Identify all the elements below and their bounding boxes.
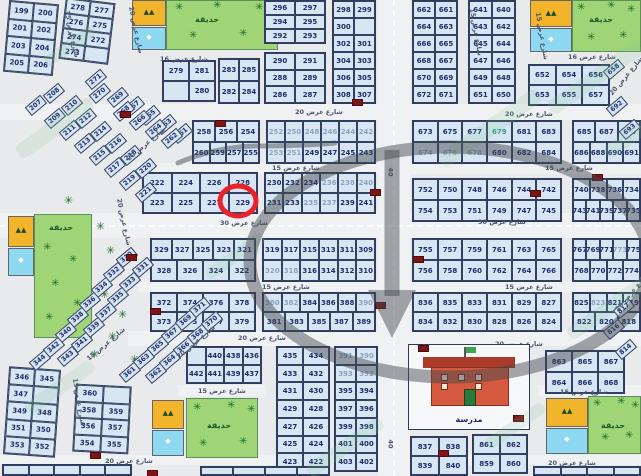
plot-block-b662: 662661664663666665668667670669672671 [412,0,458,104]
plot-cell-279: 279 [163,61,189,81]
plot-cell-436: 436 [243,347,262,365]
plot-cell-389: 389 [353,312,375,331]
school-window [441,383,448,390]
plot-cell-199: 199 [9,1,34,21]
plot-cell-435: 435 [277,347,303,365]
tree-icon: ✳ [69,255,77,265]
plot-cell-827: 827 [536,293,561,312]
boat-glyph: ◆ [547,435,587,443]
plot-row: 296297 [265,1,325,15]
park-label: حديقة [49,223,73,232]
plot-cell-empty [83,46,109,64]
tree-icon: ✳ [51,279,59,289]
plot-cell-426: 426 [303,418,329,436]
plot-cell-390: 390 [356,293,375,312]
street-v40-centerline [393,0,395,476]
plot-row: 668667 [413,52,457,69]
plot-row: 223225227229 [143,193,257,213]
plot-cell-432: 432 [303,365,329,383]
plot-cell-247: 247 [321,142,339,163]
park-label: حديقة [207,421,231,430]
plot-cell-203: 203 [6,36,31,56]
plot-row: 354355 [73,434,128,453]
plot-cell-662: 662 [413,1,435,18]
bus-stop-marker-icon [530,190,541,197]
bus-stop-marker-icon [413,256,424,263]
plot-cell-224: 224 [172,173,201,193]
plot-row: 768770772774 [573,260,640,281]
plot-cell-771: 771 [600,239,613,260]
plot-cell-306: 306 [333,69,354,86]
plot-row: 319317315313311309 [263,239,375,260]
plot-cell-769: 769 [586,239,599,260]
plot-row: 283285 [219,59,259,81]
plot-cell-290: 290 [265,53,295,70]
plot-cell-430: 430 [303,382,329,400]
plot-cell-739: 739 [600,200,613,221]
plot-cell-380: 380 [263,293,282,312]
street-label: شارع عرض 20 [295,108,343,116]
plot-cell-378: 378 [229,293,255,312]
plot-cell-300: 300 [333,18,354,35]
plot-cell-834: 834 [413,312,438,331]
plot-cell-680: 680 [487,142,512,163]
plot-cell-644: 644 [492,35,515,52]
plot-cell-648: 648 [492,69,515,86]
school-door [464,389,476,406]
plot-cell-319: 319 [263,239,282,260]
plot-cell-661: 661 [435,1,457,18]
plot-cell-860: 860 [500,454,527,473]
street-label: شارع عرض 20 [238,334,286,342]
plot-cell-296: 296 [265,1,295,15]
tree-icon: ✳ [601,433,609,443]
plot-cell-318: 318 [282,260,301,281]
boat-glyph: ◆ [9,256,33,264]
plot-block-b230: 230232234236238240231233235237239241 [264,172,376,214]
plot-cell-754: 754 [413,200,438,221]
plot-cell-314: 314 [319,260,338,281]
plot-cell-254: 254 [237,121,259,142]
plot-cell-empty [587,467,614,475]
plot-cell-437: 437 [243,365,262,383]
school-window [458,374,465,381]
plot-cell-201: 201 [7,18,32,38]
tree-icon: ✳ [627,5,635,15]
plot-cell-735: 735 [627,200,640,221]
plot-cell-248: 248 [303,121,321,142]
plot-cell-765: 765 [536,239,561,260]
plot-cell-684: 684 [536,142,561,163]
plot-cell-740: 740 [573,179,590,200]
plot-cell-244: 244 [339,121,357,142]
plot-cell-681: 681 [512,121,537,142]
plot-cell-292: 292 [265,29,295,43]
plot-block-b296: 296297294295292293 [264,0,326,44]
plot-block-b290: 290291288289286287 [264,52,326,104]
plot-cell-663: 663 [435,18,457,35]
plot-cell-246: 246 [321,121,339,142]
plot-row: 431430 [277,382,329,400]
plot-cell-empty [163,81,189,101]
plot-cell-205: 205 [4,53,29,73]
plot-cell-388: 388 [338,293,357,312]
plot-row: 391390 [335,347,377,365]
bus-stop-marker-icon [370,189,381,196]
plot-cell-236: 236 [320,173,338,193]
subdivision-map: حديقة✳✳✳✳✳✳▲▲◆حديقة✳✳✳✳✳▲▲◆حديقة✳✳✳✳✳▲▲◆… [0,0,641,476]
plot-cell-287: 287 [295,86,325,103]
park-label: حديقة [589,15,613,24]
plot-cell-381: 381 [263,312,285,331]
plot-cell-682: 682 [512,142,537,163]
school-window [441,374,448,381]
plot-row: 435434 [277,347,329,365]
plot-row: 380382384386388390 [263,293,375,312]
plot-cell-757: 757 [438,239,463,260]
plot-cell-439: 439 [224,365,243,383]
plot-row: 395394 [335,382,377,400]
plot-block-b319: 319317315313311309320318316314312310 [262,238,376,282]
plot-row: 381383385387389 [263,312,375,331]
plot-cell-767: 767 [573,239,586,260]
plot-cell-395: 395 [335,382,356,400]
plot-cell-302: 302 [333,35,354,52]
plot-cell-743: 743 [573,200,586,221]
plot-row: 288289 [265,70,325,87]
plot-cell-313: 313 [319,239,338,260]
plot-block-b380: 380382384386388390381383385387389 [262,292,376,332]
plot-cell-305: 305 [354,69,375,86]
plot-cell-763: 763 [512,239,537,260]
plot-cell-357: 357 [101,419,129,437]
plot-cell-865: 865 [572,351,598,372]
plot-cell-284: 284 [239,81,259,103]
plot-cell-670: 670 [413,69,435,86]
plot-row: 230232234236238240 [265,173,375,193]
plot-row: 253251249247245243 [267,142,375,163]
plot-cell-empty [265,467,297,475]
plot-cell-737: 737 [613,200,626,221]
plot-cell-758: 758 [438,260,463,281]
plot-cell-392: 392 [356,365,377,383]
plot-cell-298: 298 [333,1,354,18]
plot-row [3,465,131,475]
plot-cell-355: 355 [100,435,128,453]
park-bottom-center: حديقة✳✳✳✳✳ [186,398,258,458]
street-label: شارع عرض 15 [198,387,246,395]
park-bottom-right: حديقة✳✳✳✳✳ [588,396,641,454]
tree-icon: ✳ [617,397,625,407]
plot-cell-829: 829 [512,293,537,312]
tree-icon: ✳ [247,405,255,415]
plot-cell-438: 438 [224,347,243,365]
plot-cell-665: 665 [435,35,457,52]
plot-cell-391: 391 [335,347,356,365]
plot-block-b836: 836835833831829827834832830828826824 [412,292,562,332]
plot-row: 294295 [265,15,325,29]
plot-cell-299: 299 [354,1,375,18]
plot-cell-241: 241 [357,193,375,213]
plot-row: 286287 [265,86,325,103]
plot-block-b740: 740738736734743741739737735 [572,178,641,222]
park-sign-blue-icon: ◆ [152,430,184,456]
plot-cell-428: 428 [303,400,329,418]
plot-cell-429: 429 [277,400,303,418]
plot-row: 320318316314312310 [263,260,375,281]
plot-cell-230: 230 [265,173,283,193]
tree-icon: ✳ [43,243,51,253]
plot-cell-286: 286 [265,86,295,103]
plot-cell-281: 281 [189,61,215,81]
plot-cell-832: 832 [438,312,463,331]
tree-icon: ✳ [619,31,627,41]
plot-cell-252: 252 [267,121,285,142]
street-label: شارع عرض 15 [545,164,593,172]
plot-cell-304: 304 [333,52,354,69]
plot-row: 282284 [219,81,259,103]
plot-row: 834832830828826824 [413,312,561,331]
plot-row: 280 [163,81,215,101]
plot-cell-773: 773 [613,239,626,260]
plot-block-b752: 752750748746744742754753751749747745 [412,178,562,222]
plot-cell-750: 750 [438,179,463,200]
plot-cell-674: 674 [413,142,438,163]
plot-cell-734: 734 [623,179,640,200]
plot-cell-260: 260 [193,142,210,163]
street-label: 40 [387,439,395,448]
plot-cell-empty [614,467,641,475]
plot-cell-283: 283 [219,59,239,81]
tree-icon: ✳ [175,3,183,13]
plot-row: 651650 [469,86,515,103]
plot-row: 290291 [265,53,325,70]
plot-row: 756758760762764766 [413,260,561,281]
plot-cell-308: 308 [333,86,354,103]
plot-cell-243: 243 [357,142,375,163]
plot-block-b279: 279281280 [162,60,216,102]
plot-cell-746: 746 [487,179,512,200]
plot-cell-351: 351 [5,419,31,438]
plot-cell-387: 387 [330,312,352,331]
plot-cell-640: 640 [492,1,515,18]
tree-icon: ✳ [607,1,615,11]
plot-cell-839: 839 [411,456,439,475]
plot-cell-386: 386 [319,293,338,312]
street-label: شارع عرض 15 [262,283,310,291]
plot-cell-242: 242 [357,121,375,142]
plot-cell-431: 431 [277,382,303,400]
plot-cell-672: 672 [413,86,435,103]
plot-cell-772: 772 [607,260,624,281]
plot-cell-352: 352 [29,438,55,457]
plot-row: 666665 [413,35,457,52]
bus-stop-marker-icon [592,174,603,181]
plot-cell-200: 200 [33,3,58,23]
plot-cell-649: 649 [469,69,492,86]
plot-cell-646: 646 [492,52,515,69]
plot-cell-294: 294 [265,15,295,29]
plot-cell-652: 652 [529,65,556,85]
plot-cell-683: 683 [536,121,561,142]
plot-row: 743741739737735 [573,200,640,221]
plot-row: 440438436 [187,347,261,365]
plot-cell-empty [103,386,131,404]
plot-row: 767769771773775 [573,239,640,260]
plot-cell-424: 424 [303,436,329,454]
plot-cell-empty [3,465,29,475]
plot-cell-235: 235 [302,193,320,213]
palm-tree-icon: ✳ [118,310,127,320]
plot-cell-empty [354,18,375,35]
park-top-center: حديقة✳✳✳✳✳✳ [166,0,278,50]
plot-cell-664: 664 [413,18,435,35]
plot-cell-310: 310 [356,260,375,281]
plot-block-b755: 755757759761763765756758760762764766 [412,238,562,282]
park-sign-blue-icon: ◆ [8,248,34,276]
plot-cell-empty [233,467,265,475]
mountain-glyph: ▲▲ [133,8,165,16]
plot-cell-316: 316 [300,260,319,281]
tree-icon: ✳ [239,437,247,447]
plot-cell-237: 237 [320,193,338,213]
plot-block-b767: 767769771773775768770772774 [572,238,641,282]
plot-row: 260259257255 [193,142,259,163]
bus-stop-marker-icon [126,254,137,261]
plot-row: 306305 [333,69,375,86]
plot-row: 397396 [335,400,377,418]
plot-cell-831: 831 [487,293,512,312]
street-label: 40 [387,167,395,176]
plot-row: 231233235237239241 [265,193,375,213]
plot-cell-390: 390 [356,347,377,365]
plot-row: 302301 [333,35,375,52]
plot-cell-837: 837 [411,437,439,456]
plot-cell-835: 835 [438,293,463,312]
plot-cell-824: 824 [536,312,561,331]
tree-icon: ✳ [625,431,633,441]
plot-cell-836: 836 [413,293,438,312]
plot-cell-253: 253 [267,142,285,163]
plot-row: 429428 [277,400,329,418]
plot-cell-863: 863 [546,351,572,372]
mountain-glyph: ▲▲ [153,409,183,417]
plot-cell-738: 738 [590,179,607,200]
boat-glyph: ◆ [153,437,183,445]
bus-stop-marker-icon [352,99,363,106]
plot-row: 222224226228 [143,173,257,193]
plot-cell-354: 354 [73,434,101,452]
plot-cell-234: 234 [302,173,320,193]
plot-block-b440: 440438436442441439437 [186,346,262,384]
plot-row [534,467,640,475]
plot-cell-227: 227 [200,193,229,213]
plot-cell-766: 766 [536,260,561,281]
plot-cell-328: 328 [151,260,177,281]
plot-cell-320: 320 [263,260,282,281]
plot-cell-293: 293 [295,29,325,43]
plot-cell-297: 297 [295,1,325,15]
plot-cell-325: 325 [193,239,214,260]
street-label: شارع عرض 20 [105,457,153,465]
park-sign-yellow-icon: ▲▲ [546,398,588,427]
plot-cell-650: 650 [492,86,515,103]
bus-stop-marker-icon [90,452,101,459]
plot-cell-empty [54,465,80,475]
plot-cell-233: 233 [283,193,301,213]
plot-cell-309: 309 [356,239,375,260]
plot-cell-303: 303 [354,52,375,69]
bus-stop-marker-icon [215,120,226,127]
plot-row: 252250248246244242 [267,121,375,142]
plot-cell-326: 326 [177,260,203,281]
plot-cell-359: 359 [102,403,130,421]
plot-row: 304303 [333,52,375,69]
plot-block-b258: 258256254260259257255 [192,120,260,164]
plot-cell-427: 427 [277,418,303,436]
plot-row: 755757759761763765 [413,239,561,260]
street-label: شارع عرض 15 [560,388,608,396]
plot-row: 672671 [413,86,457,103]
plot-row: 442441439437 [187,365,261,383]
plot-cell-288: 288 [265,70,295,87]
plot-cell-745: 745 [536,200,561,221]
palm-tree-icon: ✳ [96,222,105,232]
plot-cell-346: 346 [9,367,35,386]
plot-block-eb3 [533,466,641,476]
street-label: شارع عرض 15 [272,164,320,172]
plot-row: 298299 [333,1,375,18]
plot-row: 353352 [4,436,55,457]
plot-cell-295: 295 [295,15,325,29]
plot-row: 328326324322 [151,260,255,281]
park-sign-yellow-icon: ▲▲ [8,216,34,247]
street-label: شارع عرض 30 [220,219,268,227]
plot-cell-642: 642 [492,18,515,35]
plot-cell-291: 291 [295,53,325,70]
plot-block-b283: 283285282284 [218,58,260,104]
plot-cell-379: 379 [229,312,255,331]
plot-cell-397: 397 [335,400,356,418]
plot-cell-232: 232 [283,173,301,193]
tree-icon: ✳ [227,401,235,411]
plot-cell-329: 329 [151,239,172,260]
park-sign-yellow-icon: ▲▲ [152,400,184,429]
bus-stop-marker-icon [418,345,429,352]
street-label: شارع عرض 20 [548,459,596,467]
plot-cell-760: 760 [462,260,487,281]
plot-cell-350: 350 [30,421,56,440]
plot-row: 279281 [163,61,215,81]
plot-cell-385: 385 [308,312,330,331]
plot-block-b298: 298299300302301304303306305308307 [332,0,376,104]
plot-block-b242: 252250248246244242253251249247245243 [266,120,376,164]
plot-cell-651: 651 [469,86,492,103]
plot-cell-826: 826 [512,312,537,331]
tree-icon: ✳ [255,3,263,13]
plot-cell-238: 238 [338,173,356,193]
plot-cell-830: 830 [462,312,487,331]
plot-cell-282: 282 [219,81,239,103]
plot-cell-202: 202 [31,21,56,41]
plot-cell-396: 396 [356,400,377,418]
plot-cell-859: 859 [473,454,500,473]
plot-cell-228: 228 [229,173,258,193]
plot-row: 258256254 [193,121,259,142]
plot-cell-229: 229 [229,193,258,213]
plot-cell-671: 671 [435,86,457,103]
school-window [475,374,482,381]
